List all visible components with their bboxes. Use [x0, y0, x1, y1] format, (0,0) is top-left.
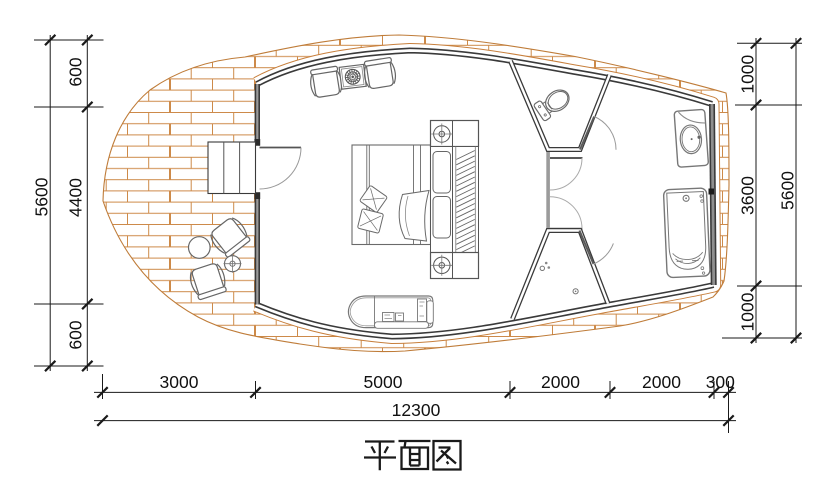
svg-text:5000: 5000 [364, 372, 403, 392]
svg-text:2000: 2000 [541, 372, 580, 392]
svg-text:3000: 3000 [160, 372, 199, 392]
svg-text:300: 300 [706, 372, 735, 392]
svg-text:12300: 12300 [392, 400, 441, 420]
svg-text:600: 600 [66, 57, 86, 86]
svg-text:3600: 3600 [738, 176, 758, 215]
svg-text:2000: 2000 [642, 372, 681, 392]
svg-text:5600: 5600 [778, 171, 798, 210]
svg-text:1000: 1000 [738, 292, 758, 331]
svg-text:1000: 1000 [738, 54, 758, 93]
svg-text:5600: 5600 [32, 177, 52, 216]
svg-text:600: 600 [66, 320, 86, 349]
svg-text:4400: 4400 [66, 178, 86, 217]
